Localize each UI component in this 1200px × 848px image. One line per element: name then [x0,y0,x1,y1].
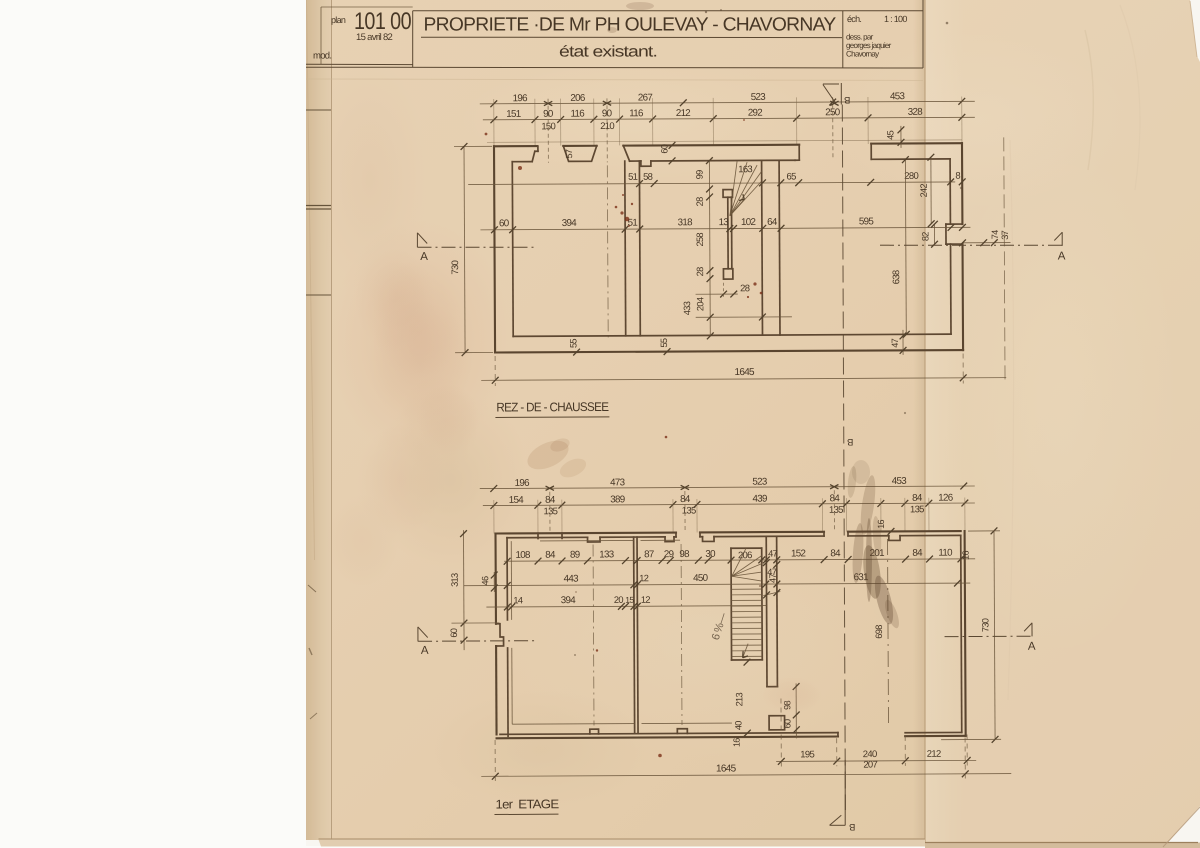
svg-text:PROPRIETE ·DE Mr PH OULEVAY -: PROPRIETE ·DE Mr PH OULEVAY - CHAVORNAY [424,15,837,36]
svg-text:313: 313 [450,573,460,587]
svg-text:74: 74 [990,230,1000,239]
svg-text:450: 450 [693,573,709,584]
svg-text:12: 12 [639,573,649,583]
svg-text:15 avril 82: 15 avril 82 [356,32,393,43]
svg-text:394: 394 [562,218,578,229]
svg-text:523: 523 [751,92,767,103]
svg-text:389: 389 [610,494,625,505]
svg-text:242: 242 [919,184,929,198]
svg-text:84: 84 [912,493,923,504]
svg-text:B: B [844,94,850,105]
svg-text:126: 126 [938,493,954,504]
svg-text:328: 328 [908,107,924,118]
svg-text:195: 195 [800,749,814,760]
svg-text:A: A [1058,251,1066,263]
svg-text:213: 213 [734,692,744,706]
svg-text:439: 439 [752,494,767,505]
svg-text:55: 55 [659,338,669,347]
svg-text:60: 60 [659,144,669,154]
svg-text:40: 40 [733,721,743,730]
svg-text:65: 65 [786,171,796,182]
svg-text:206: 206 [570,93,586,104]
svg-text:28: 28 [740,283,750,294]
svg-text:196: 196 [513,93,529,104]
svg-text:28: 28 [695,197,705,207]
svg-text:212: 212 [927,749,941,760]
svg-text:B: B [847,436,853,447]
svg-text:207: 207 [863,760,877,771]
svg-text:99: 99 [695,170,705,180]
svg-text:plan: plan [331,15,346,25]
svg-text:212: 212 [676,108,691,119]
svg-text:84: 84 [830,548,841,559]
svg-text:280: 280 [904,171,918,182]
svg-text:47: 47 [767,567,777,577]
svg-text:55: 55 [569,339,579,348]
svg-text:16: 16 [961,551,971,560]
svg-text:154: 154 [509,495,525,506]
svg-text:51: 51 [628,172,638,183]
svg-text:730: 730 [980,618,990,632]
svg-text:46: 46 [480,576,490,585]
svg-text:B: B [849,821,855,832]
svg-text:240: 240 [863,749,877,760]
svg-text:éch.: éch. [847,14,861,24]
svg-text:453: 453 [892,476,908,487]
svg-text:267: 267 [638,92,653,103]
svg-text:443: 443 [564,574,580,585]
svg-text:mod.: mod. [313,51,331,62]
svg-text:433: 433 [682,301,692,315]
svg-text:116: 116 [570,109,585,120]
svg-text:133: 133 [599,549,615,560]
svg-text:151: 151 [506,109,521,120]
svg-text:16: 16 [732,738,742,747]
svg-text:135: 135 [682,505,696,516]
svg-text:60: 60 [449,628,459,638]
svg-text:14: 14 [513,595,523,605]
svg-text:473: 473 [610,477,626,488]
svg-text:84: 84 [680,494,691,505]
svg-text:87: 87 [644,549,654,560]
svg-text:258: 258 [695,233,705,247]
svg-text:101 00: 101 00 [354,8,411,35]
svg-text:1 : 100: 1 : 100 [884,14,907,24]
svg-text:20: 20 [614,595,624,605]
svg-text:1645: 1645 [716,763,737,774]
svg-text:84: 84 [545,550,556,561]
svg-text:1er ETAGE: 1er ETAGE [495,797,558,811]
svg-text:318: 318 [678,217,694,228]
svg-text:30: 30 [705,549,716,560]
svg-text:82: 82 [920,232,930,241]
svg-text:196: 196 [515,478,531,489]
svg-text:292: 292 [748,108,763,119]
svg-text:8: 8 [955,171,960,182]
svg-text:110: 110 [938,548,953,559]
svg-text:37: 37 [1000,230,1010,239]
svg-text:89: 89 [570,550,580,561]
svg-text:28: 28 [695,267,705,277]
svg-text:64: 64 [767,217,778,228]
svg-text:58: 58 [643,172,653,183]
svg-text:57: 57 [564,149,574,158]
svg-text:204: 204 [695,297,705,311]
svg-text:394: 394 [561,595,577,606]
svg-text:84: 84 [830,493,841,504]
svg-text:Chavornay: Chavornay [846,50,879,59]
svg-text:47: 47 [890,338,900,347]
svg-text:698: 698 [874,625,884,639]
svg-text:13: 13 [719,217,730,228]
svg-text:152: 152 [791,548,806,559]
svg-text:A: A [1028,641,1036,653]
svg-text:15: 15 [625,595,634,605]
svg-text:84: 84 [912,548,923,559]
svg-text:60: 60 [499,218,510,229]
svg-text:523: 523 [752,477,768,488]
svg-text:état existant.: état existant. [559,44,657,61]
svg-text:595: 595 [859,216,875,227]
svg-text:12: 12 [641,595,651,605]
svg-text:102: 102 [741,217,756,228]
svg-text:108: 108 [515,550,531,561]
svg-text:135: 135 [910,504,924,515]
svg-text:47: 47 [768,549,778,559]
svg-text:730: 730 [450,260,461,274]
svg-text:45: 45 [885,130,895,139]
svg-text:453: 453 [890,91,906,102]
svg-text:1645: 1645 [734,367,755,378]
svg-text:REZ - DE - CHAUSSEE: REZ - DE - CHAUSSEE [496,400,608,415]
svg-text:135: 135 [543,506,557,517]
svg-text:84: 84 [545,495,556,506]
svg-text:A: A [421,645,429,657]
svg-text:116: 116 [629,108,644,119]
svg-text:638: 638 [891,270,902,284]
svg-text:135: 135 [829,505,843,516]
svg-text:29: 29 [664,549,674,560]
svg-text:60: 60 [782,719,792,728]
svg-text:163: 163 [738,164,752,175]
